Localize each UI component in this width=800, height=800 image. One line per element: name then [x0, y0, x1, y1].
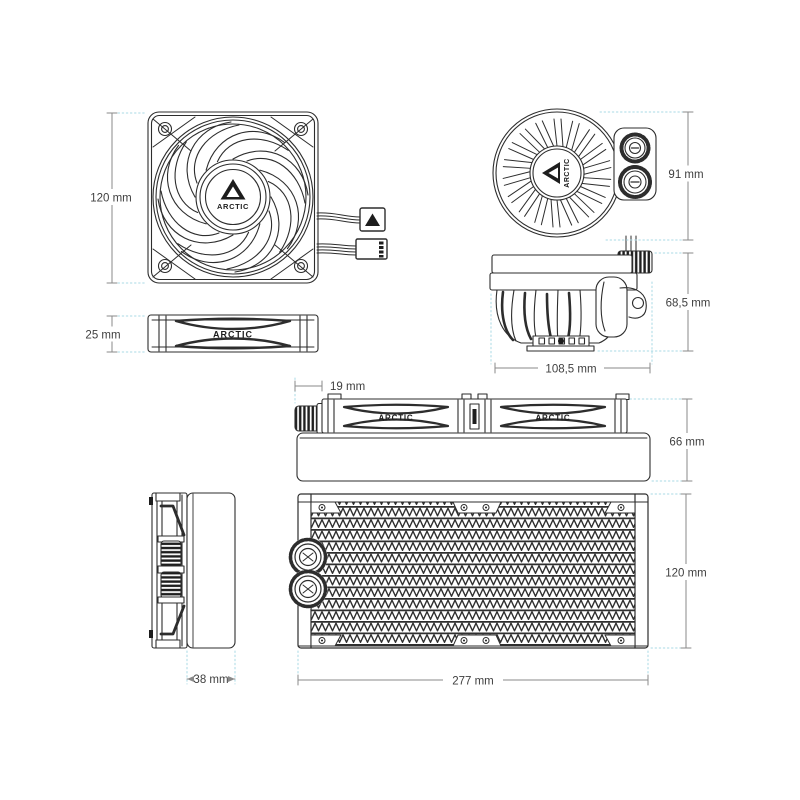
- pump-width-label: 91 mm: [668, 169, 703, 181]
- radiator-assembly-side-view: ARCTIC ARCTIC: [295, 394, 650, 481]
- pump-top-brand-text: ARCTIC: [564, 158, 571, 187]
- fan-hub-brand-text: ARCTIC: [217, 202, 249, 211]
- assembly-fan2-brand-text: ARCTIC: [535, 414, 570, 423]
- radiator-front-view: [289, 494, 649, 648]
- pump-tubes: [626, 236, 636, 251]
- radiator-end-view: [149, 493, 235, 648]
- cable-connector-logo: [360, 208, 385, 231]
- dimension-radiator-length: 277 mm: [298, 651, 648, 689]
- fan-front-view: ARCTIC: [147, 111, 387, 283]
- dimension-fan-height: 120 mm: [85, 113, 146, 283]
- end-radiator-body: [187, 493, 235, 648]
- diagram-canvas: ARCTIC 120 mm: [0, 0, 800, 800]
- fan-side-view: ARCTIC: [148, 315, 318, 352]
- pump-base: [527, 336, 594, 351]
- pump-top-view: ARCTIC: [493, 109, 656, 251]
- dimension-fan-thickness: 25 mm: [80, 316, 146, 352]
- assembly-radiator-body: [297, 433, 650, 481]
- pump-side-view: [490, 251, 652, 351]
- radiator-fin-core: [311, 502, 635, 646]
- pump-elbow-fitting: [596, 277, 646, 337]
- fan-thickness-label: 25 mm: [85, 330, 120, 342]
- radiator-depth-label: 38 mm: [193, 674, 228, 686]
- cable-connector-4pin: [356, 239, 387, 259]
- fan-side-brand-text: ARCTIC: [213, 330, 253, 340]
- radiator-hose-fitting: [289, 570, 328, 609]
- hose-fitting: [620, 167, 650, 197]
- pump-height-label: 68,5 mm: [666, 298, 711, 310]
- dimension-radiator-height: 120 mm: [651, 494, 713, 648]
- fan-height-label: 120 mm: [90, 193, 132, 205]
- radiator-length-label: 277 mm: [452, 676, 494, 688]
- assembly-height-label: 66 mm: [669, 437, 704, 449]
- end-fitting: [161, 572, 181, 598]
- end-fitting: [161, 541, 181, 567]
- dimension-radiator-depth: 38 mm: [187, 651, 235, 686]
- radiator-height-label: 120 mm: [665, 568, 707, 580]
- fitting-protrusion-label: 19 mm: [330, 381, 365, 393]
- assembly-fan1-brand-text: ARCTIC: [378, 414, 413, 423]
- assembly-fitting: [295, 406, 320, 431]
- pump-depth-label: 108,5 mm: [545, 364, 596, 376]
- product-dimension-diagram: ARCTIC 120 mm: [0, 0, 800, 800]
- arrowhead-right: [228, 676, 235, 682]
- fan-cables: [317, 213, 360, 255]
